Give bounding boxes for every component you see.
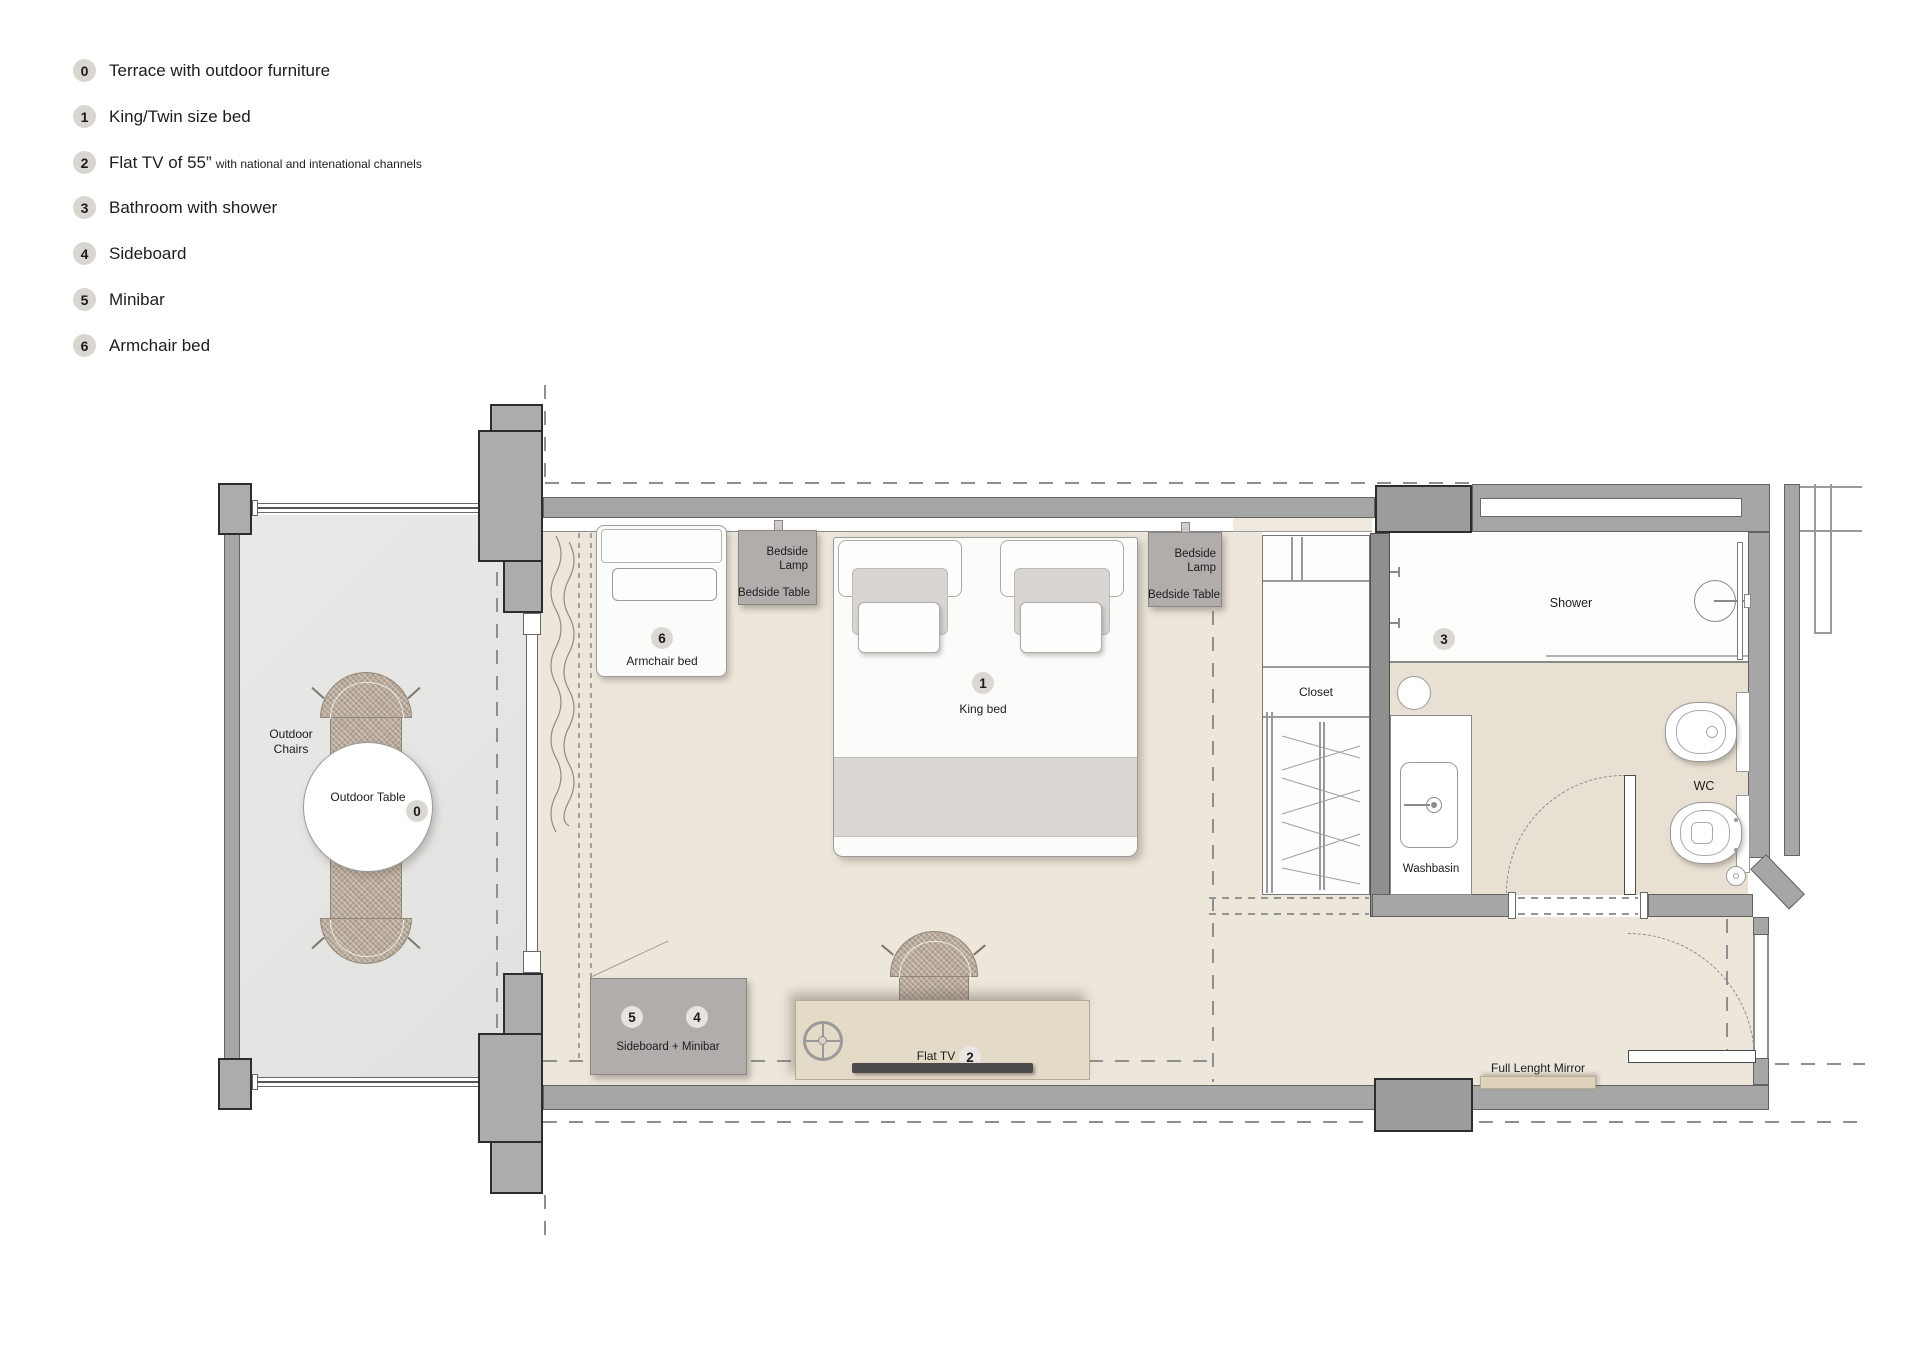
armchair-bed-headrest bbox=[601, 529, 722, 563]
badge-armchair-bed: 6 bbox=[651, 627, 673, 649]
terrace-column-bottom-left bbox=[218, 1058, 252, 1110]
bathroom-right-wall bbox=[1748, 532, 1770, 858]
closet-door-line-2 bbox=[1271, 712, 1273, 893]
window-pillar-top-c bbox=[503, 560, 543, 613]
legend-badge-3: 3 bbox=[73, 196, 96, 219]
terrace-left-wall bbox=[224, 515, 240, 1080]
closet-label: Closet bbox=[1280, 685, 1352, 700]
window-pillar-top-b bbox=[478, 430, 543, 562]
legend-badge-6: 6 bbox=[73, 334, 96, 357]
bath-opening-dash-bottom bbox=[1518, 913, 1638, 915]
passage-dash-top bbox=[1209, 897, 1369, 899]
bedroom-corridor-dash-line bbox=[1212, 533, 1214, 1082]
neighbor-line-v1 bbox=[1814, 484, 1816, 634]
terrace-window-frame-top bbox=[523, 613, 541, 635]
passage-dash-bottom bbox=[1209, 913, 1369, 915]
bathroom-south-wall-right bbox=[1648, 894, 1753, 917]
closet-divider-2 bbox=[1301, 537, 1303, 581]
legend-badge-5: 5 bbox=[73, 288, 96, 311]
bedroom-top-wall bbox=[543, 497, 1375, 518]
king-bed-blanket bbox=[834, 757, 1137, 837]
legend-label-6: Armchair bed bbox=[109, 336, 210, 356]
armchair-bed-cushion bbox=[612, 568, 717, 601]
mirror-label: Full Lenght Mirror bbox=[1476, 1061, 1600, 1076]
corridor-right-wall-top bbox=[1753, 917, 1769, 935]
closet-shelf-2 bbox=[1263, 666, 1369, 668]
bath-door-jamb-left bbox=[1508, 892, 1516, 919]
outer-right-wall bbox=[1784, 484, 1800, 856]
bedside-lamp-right-label: Bedside Lamp bbox=[1164, 547, 1216, 575]
bathroom-stool bbox=[1397, 676, 1431, 710]
outdoor-chair-bottom-back-line bbox=[330, 920, 404, 957]
window-pillar-bottom-b bbox=[478, 1033, 543, 1143]
terrace-railing-top-line bbox=[256, 507, 494, 509]
wc-upper-drain bbox=[1706, 726, 1718, 738]
construction-line-right bbox=[1775, 1063, 1865, 1065]
bedside-lamp-left-label: Bedside Lamp bbox=[756, 545, 808, 573]
armchair-bed-label: Armchair bed bbox=[602, 654, 722, 669]
badge-bathroom: 3 bbox=[1433, 628, 1455, 650]
towel-hook-2-tick bbox=[1398, 618, 1400, 628]
outdoor-chairs-label: Outdoor Chairs bbox=[258, 727, 324, 756]
legend-label-5: Minibar bbox=[109, 290, 165, 310]
entry-doorway-face-right bbox=[1767, 935, 1769, 1058]
console-tray-center bbox=[818, 1036, 827, 1045]
wc-upper-bowl-inner bbox=[1676, 710, 1726, 754]
legend-label-3: Bathroom with shower bbox=[109, 198, 277, 218]
legend-item-armchair: 6 Armchair bed bbox=[73, 334, 210, 357]
closet-hangers bbox=[1276, 720, 1366, 892]
wall-junction-block bbox=[1375, 485, 1472, 533]
legend-item-terrace: 0 Terrace with outdoor furniture bbox=[73, 59, 330, 82]
bathroom-door-leaf bbox=[1624, 775, 1636, 895]
construction-line-below-wall bbox=[543, 1121, 1865, 1123]
desk-chair-back-line bbox=[899, 941, 971, 978]
neighbor-line-h3 bbox=[1814, 632, 1832, 634]
wc-lower-seat bbox=[1691, 822, 1713, 844]
window-pillar-top-a bbox=[490, 404, 543, 432]
curtain-wave-1 bbox=[551, 536, 561, 832]
terrace-railing-bottom-line bbox=[256, 1081, 494, 1083]
shower-glass-panel bbox=[1737, 542, 1743, 660]
legend-item-tv: 2 Flat TV of 55”with national and intena… bbox=[73, 151, 422, 174]
legend-label-2-suffix: with national and intenational channels bbox=[216, 157, 422, 171]
towel-hook-1-tick bbox=[1398, 567, 1400, 577]
shower-edge-line-2 bbox=[1546, 655, 1748, 657]
window-pillar-bottom-c bbox=[490, 1141, 543, 1194]
terrace-window-frame-bottom bbox=[523, 951, 541, 973]
king-bed-pillow-right-3 bbox=[1020, 602, 1102, 653]
construction-line-bottom bbox=[544, 1195, 546, 1237]
badge-king-bed: 1 bbox=[972, 672, 994, 694]
floor-drain-dot bbox=[1733, 873, 1739, 879]
shower-label: Shower bbox=[1536, 596, 1606, 611]
badge-terrace: 0 bbox=[406, 800, 428, 822]
bath-opening-dash-top bbox=[1518, 897, 1638, 899]
terrace-room-dash-line bbox=[496, 520, 498, 1077]
curtain-wave-2 bbox=[564, 542, 574, 826]
window-pillar-bottom-a bbox=[503, 973, 543, 1035]
bathroom-south-wall-left bbox=[1372, 894, 1514, 917]
legend-label-2-main: Flat TV of 55” bbox=[109, 153, 212, 172]
mirror-bar bbox=[1480, 1076, 1596, 1089]
angled-wall bbox=[1750, 854, 1805, 910]
legend-badge-0: 0 bbox=[73, 59, 96, 82]
washbasin-label: Washbasin bbox=[1390, 862, 1472, 876]
badge-minibar: 5 bbox=[621, 1006, 643, 1028]
shower-valve bbox=[1744, 594, 1751, 608]
railing-bottom-cap-left bbox=[252, 1074, 258, 1090]
sideboard-minibar-label: Sideboard + Minibar bbox=[594, 1040, 742, 1054]
sideboard-minibar bbox=[590, 978, 747, 1075]
badge-sideboard: 4 bbox=[686, 1006, 708, 1028]
construction-line-above-wall bbox=[545, 482, 1472, 484]
neighbor-line-v2 bbox=[1830, 484, 1832, 634]
outdoor-chair-top-back-line bbox=[330, 682, 404, 719]
closet-hanger-lines bbox=[1282, 736, 1360, 884]
wc-lower-hinge-2 bbox=[1734, 848, 1738, 852]
construction-line-top bbox=[544, 385, 546, 483]
legend-label-2: Flat TV of 55”with national and intenati… bbox=[109, 153, 422, 173]
king-bed-label: King bed bbox=[943, 702, 1023, 717]
bathroom-window-top bbox=[1480, 498, 1742, 517]
legend-item-minibar: 5 Minibar bbox=[73, 288, 165, 311]
legend-label-0: Terrace with outdoor furniture bbox=[109, 61, 330, 81]
curtain-waves bbox=[548, 536, 580, 832]
shower-edge-line bbox=[1390, 661, 1748, 663]
passage-floor bbox=[1262, 895, 1372, 1085]
terrace-column-top-left bbox=[218, 483, 252, 535]
railing-top-cap-left bbox=[252, 500, 258, 516]
legend-badge-2: 2 bbox=[73, 151, 96, 174]
outdoor-table-label: Outdoor Table bbox=[330, 790, 406, 805]
closet-shelf-1 bbox=[1263, 580, 1369, 582]
entry-door-leaf bbox=[1628, 1050, 1756, 1063]
legend-badge-4: 4 bbox=[73, 242, 96, 265]
closet-door-line-1 bbox=[1266, 712, 1268, 893]
king-bed-foot-line bbox=[834, 836, 1137, 837]
wc-lower-hinge-1 bbox=[1734, 818, 1738, 822]
terrace-window-glass bbox=[526, 613, 538, 973]
bottom-wall-column bbox=[1374, 1078, 1473, 1132]
closet-top-strip bbox=[1233, 518, 1372, 532]
legend-item-bathroom: 3 Bathroom with shower bbox=[73, 196, 277, 219]
legend-item-sideboard: 4 Sideboard bbox=[73, 242, 187, 265]
closet-bathroom-wall bbox=[1370, 533, 1390, 917]
legend-label-1: King/Twin size bed bbox=[109, 107, 251, 127]
floor-plan-page: 0 Terrace with outdoor furniture 1 King/… bbox=[0, 0, 1920, 1357]
wc-label: WC bbox=[1684, 779, 1724, 794]
bedside-table-right-label: Bedside Table bbox=[1136, 588, 1220, 602]
king-bed-pillow-left-3 bbox=[858, 602, 940, 653]
bath-door-jamb-right bbox=[1640, 892, 1648, 919]
legend-item-bed: 1 King/Twin size bed bbox=[73, 105, 251, 128]
legend-label-4: Sideboard bbox=[109, 244, 187, 264]
wc-upper-tank bbox=[1736, 692, 1750, 772]
bedside-table-left-label: Bedside Table bbox=[726, 586, 810, 600]
tv-bar bbox=[852, 1063, 1033, 1073]
washbasin-faucet-dot bbox=[1431, 802, 1437, 808]
closet-divider-1 bbox=[1291, 537, 1293, 581]
closet-shelf-3 bbox=[1263, 716, 1369, 718]
legend-badge-1: 1 bbox=[73, 105, 96, 128]
